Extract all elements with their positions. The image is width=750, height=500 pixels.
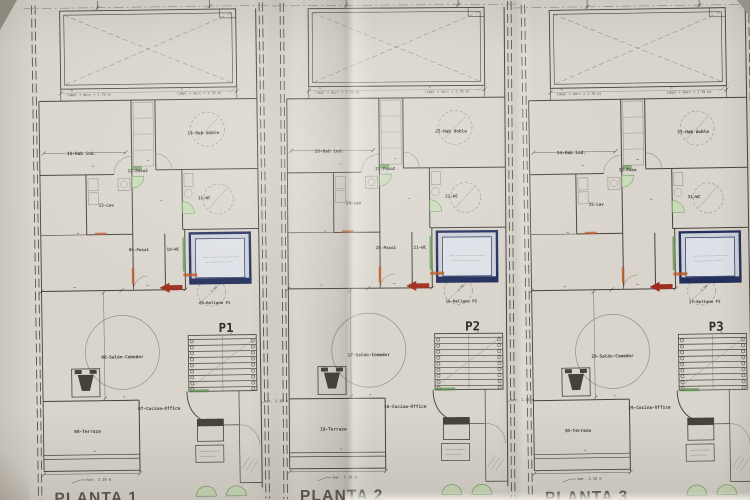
- annotation-ampl: (ampl + marc = 1.70 m): [666, 90, 711, 95]
- room-label-wc-upper: 22-WC: [445, 194, 458, 199]
- plan-level-label: P2: [465, 318, 480, 333]
- room-labels: 34-Hab ind.33-Hab doble32-Paso35-Lav31-W…: [538, 89, 750, 500]
- plan-level-label: P3: [709, 319, 724, 334]
- staircase: [435, 333, 503, 390]
- room-label-cocina: 29-Cocina-Office: [628, 405, 671, 412]
- annotation-bar-railing: bar. 1.10 m: [578, 477, 602, 481]
- annotation-turning-radius: 1.50: [210, 285, 218, 293]
- elevator: [680, 231, 741, 282]
- room-label-wc-lower: 21-WC: [414, 245, 427, 250]
- annotation-bar-railing: bar. 1.10 m: [333, 475, 357, 479]
- salon-table-circle: [85, 315, 160, 390]
- room-label-terraza: 30-Terraza: [565, 428, 592, 434]
- floor-plan-planta-2: 26-Hab ind.25-Hab doble23-Paso224-Lav22-…: [278, 0, 516, 500]
- room-label-salon: 17-Salón-Comedor: [348, 351, 391, 358]
- room-label-rellano: 27-Rellano P3: [689, 299, 721, 305]
- staircase: [188, 335, 257, 392]
- annotation-turning-radius: 1.50: [700, 284, 708, 292]
- room-label-paso1: 20-Paso1: [376, 245, 397, 250]
- room-label-cocina: 18-Cocina-Office: [384, 404, 427, 410]
- annotation-ampl: (ampl + marc = 1.70 m): [67, 93, 112, 98]
- room-label-paso2: 32-Paso: [619, 167, 637, 172]
- elevator: [437, 231, 497, 281]
- annotation-turning-radius: 1.50: [456, 284, 464, 292]
- room-label-hab-doble: 25-Hab doble: [435, 128, 467, 134]
- room-label-lav: 13-Lav: [99, 202, 115, 207]
- annotation-ampl: (ampl + marc = 1.70 m): [315, 90, 360, 94]
- room-label-lav: 35-Lav: [589, 202, 605, 207]
- salon-table-circle: [331, 313, 406, 388]
- orange-highlights: [95, 231, 198, 284]
- floor-plan-planta-3: 34-Hab ind.33-Hab doble32-Paso35-Lav31-W…: [519, 0, 750, 500]
- patio-void: [549, 8, 728, 101]
- staircase: [678, 333, 747, 390]
- photo-edge-shadow: [0, 454, 30, 500]
- plan-level-label: P1: [218, 320, 233, 335]
- room-label-rellano: 16-Rellano P2: [446, 298, 478, 303]
- photo-corner-shadow: [0, 0, 17, 30]
- orange-highlights: [342, 230, 444, 283]
- room-label-paso1: 09-Paso1: [129, 247, 150, 252]
- plan-title: PLANTA 2: [300, 487, 384, 500]
- patio-void: [60, 9, 239, 101]
- red-direction-arrow: [159, 283, 182, 293]
- salon-table-circle: [575, 314, 650, 389]
- scanned-floorplan-sheet: 15-Hab ind.14-Hab doble12-Paso213-Lav11-…: [0, 0, 750, 500]
- plan-drawing: 34-Hab ind.33-Hab doble32-Paso35-Lav31-W…: [519, 0, 750, 500]
- room-label-hab-ind: 26-Hab ind.: [315, 148, 344, 154]
- plan-drawing: 26-Hab ind.25-Hab doble23-Paso224-Lav22-…: [278, 0, 516, 500]
- room-label-hab-ind: 15-Hab ind.: [67, 151, 96, 157]
- room-label-hab-ind: 34-Hab ind.: [557, 150, 586, 156]
- kitchen-counter: [72, 369, 100, 397]
- room-label-paso2: 12-Paso2: [128, 168, 149, 173]
- annotation-ampl: (ampl + marc = 1.70 m): [425, 89, 470, 93]
- plan-title: PLANTA 3: [545, 488, 629, 500]
- room-label-hab-doble: 33-Hab doble: [677, 129, 709, 136]
- annotation-ampl: (ampl + marc = 1.70 m): [556, 92, 601, 97]
- room-label-lav: 24-Lav: [346, 200, 362, 205]
- red-direction-arrow: [406, 281, 429, 291]
- annotation-bar-railing: bar. 1.10 m: [87, 478, 111, 482]
- room-label-wc-lower: 10-WC: [167, 247, 180, 252]
- red-direction-arrow: [649, 281, 672, 291]
- room-label-wc-upper: 11-WC: [198, 195, 211, 200]
- room-label-salon: 06-Salón-Comedor: [101, 353, 144, 361]
- room-label-terraza: 08-Terraza: [74, 429, 101, 435]
- room-label-cocina: 07-Cocina-Office: [138, 406, 181, 413]
- room-label-terraza: 19-Terraza: [320, 426, 347, 432]
- floor-plan-planta-1: 15-Hab ind.14-Hab doble12-Paso213-Lav11-…: [30, 0, 271, 500]
- room-label-hab-doble: 14-Hab doble: [187, 130, 219, 136]
- plan-drawing: 15-Hab ind.14-Hab doble12-Paso213-Lav11-…: [30, 0, 271, 500]
- annotation-ampl: (ampl + marc = 1.70 m): [177, 91, 222, 96]
- orange-highlights: [585, 230, 688, 284]
- room-labels: 26-Hab ind.25-Hab doble23-Paso224-Lav22-…: [297, 89, 535, 500]
- patio-void: [308, 7, 487, 98]
- plan-title: PLANTA 1: [54, 489, 138, 500]
- room-labels: 15-Hab ind.14-Hab doble12-Paso213-Lav11-…: [49, 90, 290, 500]
- room-label-rellano: 05-Rellano P1: [199, 300, 231, 305]
- kitchen-counter: [562, 368, 590, 396]
- elevator: [190, 233, 251, 284]
- kitchen-counter: [318, 366, 346, 394]
- room-label-paso2: 23-Paso2: [375, 166, 396, 171]
- room-label-wc-upper: 31-WC: [688, 194, 701, 199]
- room-label-salon: 28-Salón-Comedor: [591, 352, 634, 360]
